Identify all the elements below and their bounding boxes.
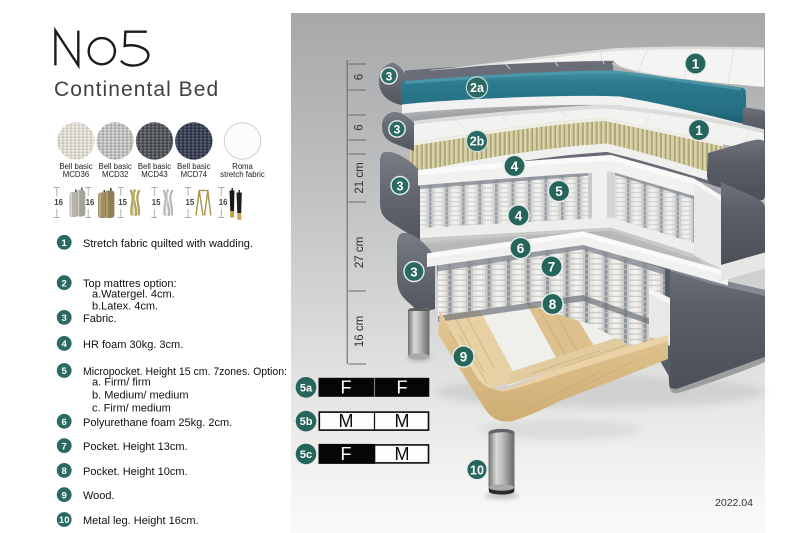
svg-text:a. Firm/ firm: a. Firm/ firm: [92, 376, 151, 388]
svg-text:1: 1: [695, 123, 703, 138]
svg-text:5c: 5c: [300, 449, 312, 461]
svg-text:16: 16: [54, 198, 63, 207]
svg-text:F: F: [397, 377, 408, 397]
svg-text:6: 6: [62, 417, 67, 428]
svg-text:MCD36: MCD36: [63, 170, 89, 179]
svg-text:a.Watergel. 4cm.: a.Watergel. 4cm.: [92, 289, 175, 301]
svg-text:2: 2: [62, 278, 67, 289]
svg-text:MCD43: MCD43: [141, 170, 167, 179]
svg-text:b.Latex. 4cm.: b.Latex. 4cm.: [92, 301, 158, 313]
svg-text:16: 16: [86, 198, 95, 207]
svg-text:3: 3: [397, 179, 404, 193]
svg-text:1: 1: [62, 238, 68, 249]
svg-text:stretch fabric: stretch fabric: [220, 170, 265, 179]
svg-text:7: 7: [548, 260, 556, 275]
svg-text:6: 6: [354, 124, 366, 130]
svg-text:4: 4: [515, 209, 523, 224]
svg-text:MCD32: MCD32: [102, 170, 128, 179]
svg-text:Metal leg. Height 16cm.: Metal leg. Height 16cm.: [83, 515, 199, 527]
svg-text:5: 5: [62, 366, 68, 377]
svg-text:2a: 2a: [470, 81, 485, 95]
svg-text:Wood.: Wood.: [83, 490, 115, 502]
svg-text:15: 15: [152, 198, 161, 207]
svg-text:3: 3: [394, 123, 401, 137]
svg-text:Pocket. Height 13cm.: Pocket. Height 13cm.: [83, 441, 188, 453]
svg-text:1: 1: [692, 57, 700, 72]
svg-text:M: M: [395, 411, 410, 431]
svg-text:21 cm: 21 cm: [354, 162, 366, 193]
svg-text:Continental Bed: Continental Bed: [54, 78, 219, 101]
svg-text:MCD74: MCD74: [181, 170, 208, 179]
svg-text:9: 9: [62, 490, 67, 501]
svg-text:3: 3: [62, 313, 67, 324]
svg-text:Polyurethane foam 25kg. 2cm.: Polyurethane foam 25kg. 2cm.: [83, 417, 232, 429]
svg-text:8: 8: [62, 466, 67, 477]
svg-text:Stretch fabric quilted with wa: Stretch fabric quilted with wadding.: [83, 238, 253, 250]
svg-text:c. Firm/ medium: c. Firm/ medium: [92, 402, 171, 414]
svg-text:5a: 5a: [300, 382, 313, 394]
svg-text:15: 15: [186, 198, 195, 207]
svg-text:HR foam 30kg. 3cm.: HR foam 30kg. 3cm.: [83, 339, 183, 351]
svg-text:Pocket. Height 10cm.: Pocket. Height 10cm.: [83, 466, 188, 478]
svg-text:6: 6: [517, 241, 525, 256]
svg-text:4: 4: [62, 339, 68, 350]
svg-text:F: F: [341, 377, 352, 397]
svg-text:M: M: [395, 444, 410, 464]
svg-text:2b: 2b: [470, 135, 485, 149]
svg-text:3: 3: [386, 69, 393, 83]
svg-text:5: 5: [555, 184, 563, 199]
svg-text:5b: 5b: [300, 416, 313, 428]
svg-text:7: 7: [62, 441, 67, 452]
svg-text:16: 16: [219, 198, 228, 207]
svg-text:10: 10: [59, 515, 70, 526]
svg-text:2022.04: 2022.04: [715, 497, 753, 509]
svg-text:b. Medium/ medium: b. Medium/ medium: [92, 390, 189, 402]
svg-text:9: 9: [460, 350, 468, 365]
svg-text:15: 15: [118, 198, 127, 207]
svg-text:Fabric.: Fabric.: [83, 313, 117, 325]
svg-text:3: 3: [410, 264, 417, 279]
svg-text:4: 4: [511, 159, 519, 174]
svg-text:6: 6: [354, 74, 366, 80]
svg-text:8: 8: [549, 297, 557, 312]
svg-text:10: 10: [470, 463, 484, 477]
svg-text:F: F: [341, 444, 352, 464]
svg-text:16 cm: 16 cm: [354, 316, 366, 347]
svg-text:27 cm: 27 cm: [354, 237, 366, 268]
svg-text:M: M: [339, 411, 354, 431]
